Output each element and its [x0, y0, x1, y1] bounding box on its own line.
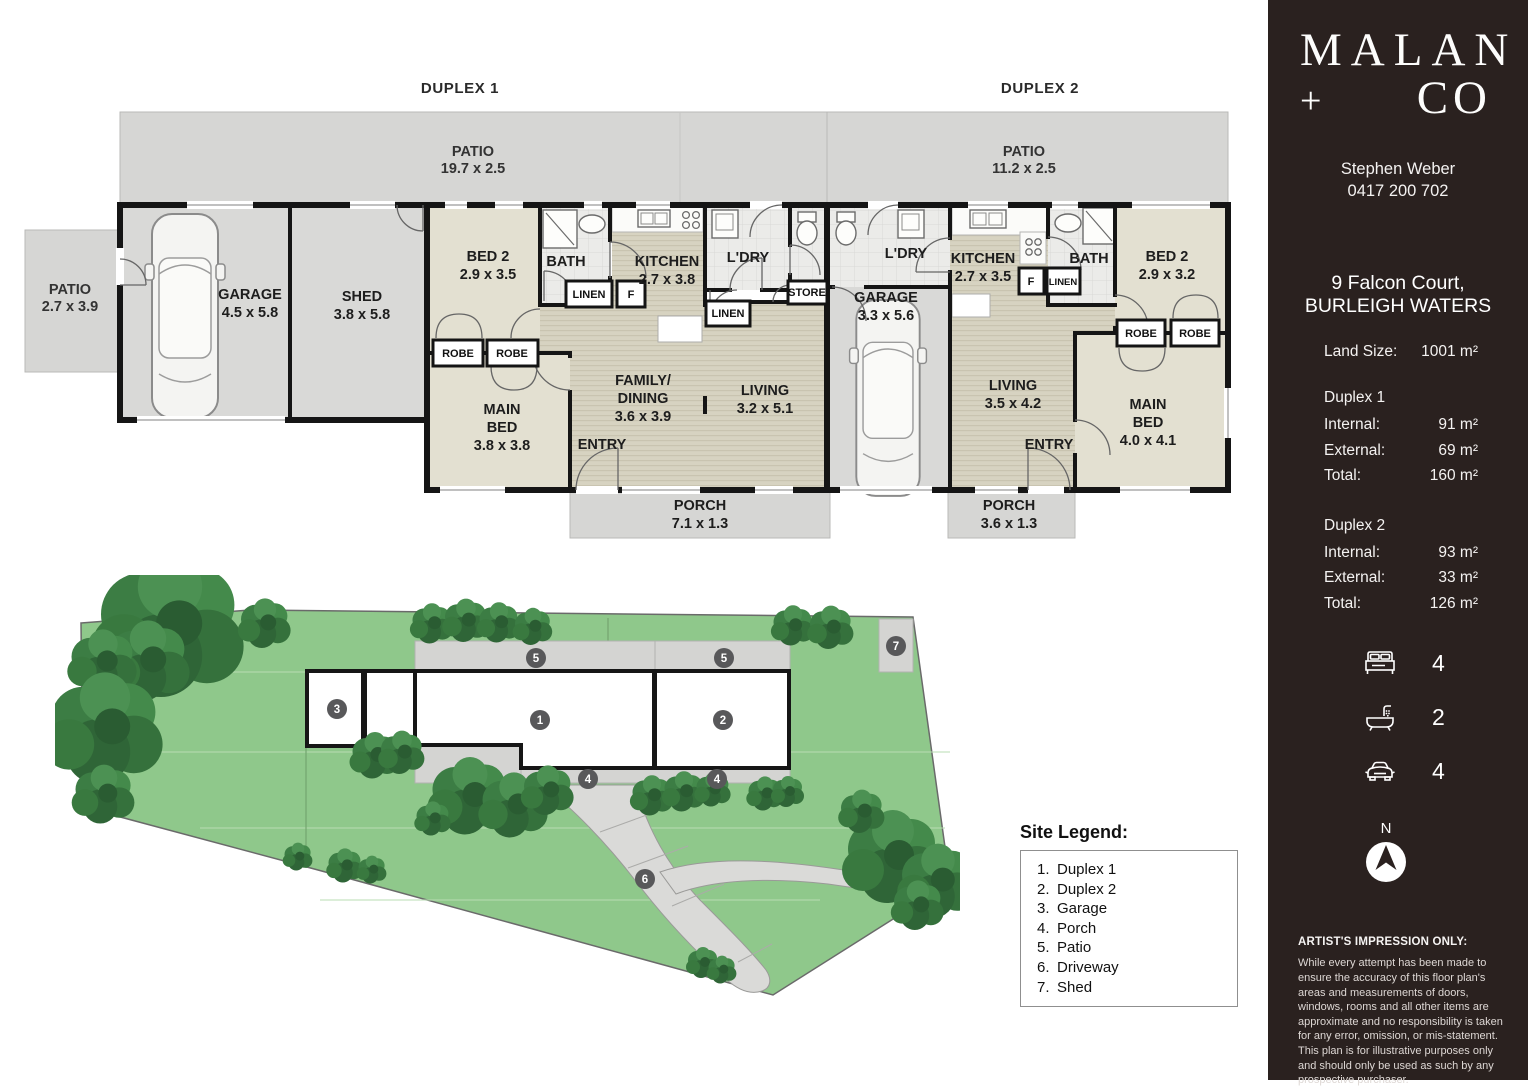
d1-robe1-label: ROBE	[442, 348, 474, 360]
marker-4a: 4	[585, 774, 592, 786]
d2-linen-label: LINEN	[1049, 277, 1078, 288]
agent-name: Stephen Weber	[1268, 159, 1528, 181]
disclaimer-title: ARTIST'S IMPRESSION ONLY:	[1298, 936, 1504, 948]
d1-kitchen-dims: 2.7 x 3.8	[639, 272, 695, 288]
car-count-icon	[1362, 754, 1398, 788]
d1-robe2-label: ROBE	[496, 348, 528, 360]
d1-ldry-label: L'DRY	[727, 250, 770, 266]
duplex2-title: DUPLEX 2	[1001, 80, 1079, 97]
marker-4b: 4	[714, 774, 721, 786]
legend-item: 6.Driveway	[1021, 958, 1231, 978]
d1-patio-side-name: PATIO	[49, 282, 91, 298]
d1-garage-dims: 4.5 x 5.8	[222, 305, 278, 321]
bath-icon	[1362, 700, 1398, 734]
brand-logo-plus: +	[1300, 79, 1321, 123]
agent-block: Stephen Weber 0417 200 702	[1268, 159, 1528, 202]
address-line1: 9 Falcon Court,	[1268, 272, 1528, 295]
d2-patio-top-name: PATIO	[1003, 144, 1045, 160]
marker-1: 1	[537, 715, 544, 727]
legend-item: 7.Shed	[1021, 978, 1231, 998]
marker-7: 7	[893, 641, 899, 653]
legend-item: 4.Porch	[1021, 919, 1231, 939]
marker-5a: 5	[533, 653, 540, 665]
brand-logo-line2: CO	[1417, 71, 1492, 125]
site-plan: 1 2 3 4 4 5 5 6 7	[55, 575, 960, 1035]
cars-count: 4	[1432, 758, 1445, 785]
land-size-value: 1001 m²	[1421, 343, 1478, 361]
cars-row: 4	[1268, 744, 1528, 798]
d2-ldry-label: L'DRY	[885, 246, 928, 262]
compass: N	[1363, 820, 1409, 890]
page: DUPLEX 1 DUPLEX 2 PATIO 19.7 x 2.5 PATIO…	[0, 0, 1528, 1080]
compass-north-label: N	[1363, 820, 1409, 837]
d1-porch-name: PORCH	[674, 498, 726, 514]
d2-kitchen-dims: 2.7 x 3.5	[955, 269, 1011, 285]
d2-living-dims: 3.5 x 4.2	[985, 396, 1041, 412]
marker-6: 6	[642, 874, 648, 886]
d1-shed-name: SHED	[342, 289, 382, 305]
d1-patio-top-dims: 19.7 x 2.5	[441, 161, 506, 177]
agent-phone: 0417 200 702	[1268, 181, 1528, 203]
legend-item: 5.Patio	[1021, 938, 1231, 958]
brand-logo: MALAN + CO	[1268, 0, 1528, 125]
d1-store-label: STORE	[788, 287, 826, 299]
d2-garage-name: GARAGE	[854, 290, 918, 306]
site-legend: Site Legend: 1.Duplex 1 2.Duplex 2 3.Gar…	[1020, 822, 1238, 1007]
marker-2: 2	[720, 715, 726, 727]
d2-living-name: LIVING	[989, 378, 1037, 394]
d1-family-l2: DINING	[618, 391, 669, 407]
site-legend-title: Site Legend:	[1020, 822, 1238, 843]
legend-item: 1.Duplex 1	[1021, 860, 1231, 880]
duplex2-areas: Duplex 2 Internal:93 m² External:33 m² T…	[1324, 517, 1478, 617]
d2-porch-dims: 3.6 x 1.3	[981, 516, 1037, 532]
d1-mainbed-l2: BED	[487, 420, 518, 436]
d1-living-name: LIVING	[741, 383, 789, 399]
d1-living-dims: 3.2 x 5.1	[737, 401, 793, 417]
d1-bed2-dims: 2.9 x 3.5	[460, 267, 516, 283]
baths-row: 2	[1268, 690, 1528, 744]
bed-icon	[1362, 646, 1398, 680]
legend-item: 2.Duplex 2	[1021, 880, 1231, 900]
d1-family-dims: 3.6 x 3.9	[615, 409, 671, 425]
d1-shed-dims: 3.8 x 5.8	[334, 307, 390, 323]
land-size-label: Land Size:	[1324, 343, 1397, 361]
duplex1-title: DUPLEX 1	[421, 80, 499, 97]
beds-row: 4	[1268, 636, 1528, 690]
d2-patio-top-dims: 11.2 x 2.5	[992, 161, 1056, 177]
legend-item: 3.Garage	[1021, 899, 1231, 919]
d1-family-l1: FAMILY/	[615, 373, 671, 389]
brand-logo-line1: MALAN	[1300, 26, 1492, 75]
site-legend-box: 1.Duplex 1 2.Duplex 2 3.Garage 4.Porch 5…	[1020, 850, 1238, 1007]
d2-fridge-label: F	[1028, 276, 1035, 288]
compass-rose-icon	[1363, 839, 1409, 885]
d2-mainbed-l2: BED	[1133, 415, 1164, 431]
d1-mainbed-dims: 3.8 x 3.8	[474, 438, 530, 454]
d2-kitchen-name: KITCHEN	[951, 251, 1015, 267]
baths-count: 2	[1432, 704, 1445, 731]
d2-mainbed-l1: MAIN	[1129, 397, 1166, 413]
property-address: 9 Falcon Court, BURLEIGH WATERS	[1268, 272, 1528, 317]
d2-porch-name: PORCH	[983, 498, 1035, 514]
d1-linen2-label: LINEN	[712, 308, 745, 320]
d1-garage-name: GARAGE	[218, 287, 282, 303]
d2-mainbed-dims: 4.0 x 4.1	[1120, 433, 1176, 449]
d1-bed2-name: BED 2	[467, 249, 510, 265]
d2-bath-label: BATH	[1069, 251, 1108, 267]
duplex1-areas-title: Duplex 1	[1324, 389, 1478, 407]
info-sidebar: MALAN + CO Stephen Weber 0417 200 702 9 …	[1268, 0, 1528, 1080]
d1-kitchen-name: KITCHEN	[635, 254, 699, 270]
d1-porch-dims: 7.1 x 1.3	[672, 516, 728, 532]
beds-count: 4	[1432, 650, 1445, 677]
d1-mainbed-l1: MAIN	[483, 402, 520, 418]
d1-bath-label: BATH	[546, 254, 585, 270]
d2-robe1-label: ROBE	[1125, 328, 1157, 340]
disclaimer: ARTIST'S IMPRESSION ONLY: While every at…	[1298, 936, 1504, 1087]
marker-3: 3	[334, 704, 340, 716]
d2-garage-dims: 3.3 x 5.6	[858, 308, 914, 324]
property-stats: 4 2	[1268, 636, 1528, 798]
d2-bed2-name: BED 2	[1146, 249, 1189, 265]
duplex2-areas-title: Duplex 2	[1324, 517, 1478, 535]
duplex1-areas: Duplex 1 Internal:91 m² External:69 m² T…	[1324, 389, 1478, 489]
d2-robe2-label: ROBE	[1179, 328, 1211, 340]
d1-patio-side-dims: 2.7 x 3.9	[42, 299, 98, 315]
d1-patio-top-name: PATIO	[452, 144, 494, 160]
d2-entry-label: ENTRY	[1025, 437, 1074, 453]
d2-bed2-dims: 2.9 x 3.2	[1139, 267, 1195, 283]
marker-5b: 5	[721, 653, 728, 665]
d1-fridge-label: F	[628, 289, 635, 301]
address-line2: BURLEIGH WATERS	[1268, 295, 1528, 318]
d1-entry-label: ENTRY	[578, 437, 627, 453]
floor-plan: DUPLEX 1 DUPLEX 2 PATIO 19.7 x 2.5 PATIO…	[0, 0, 1268, 560]
land-size-row: Land Size: 1001 m²	[1324, 343, 1478, 361]
disclaimer-body: While every attempt has been made to ens…	[1298, 956, 1504, 1087]
d1-linen1-label: LINEN	[573, 289, 606, 301]
